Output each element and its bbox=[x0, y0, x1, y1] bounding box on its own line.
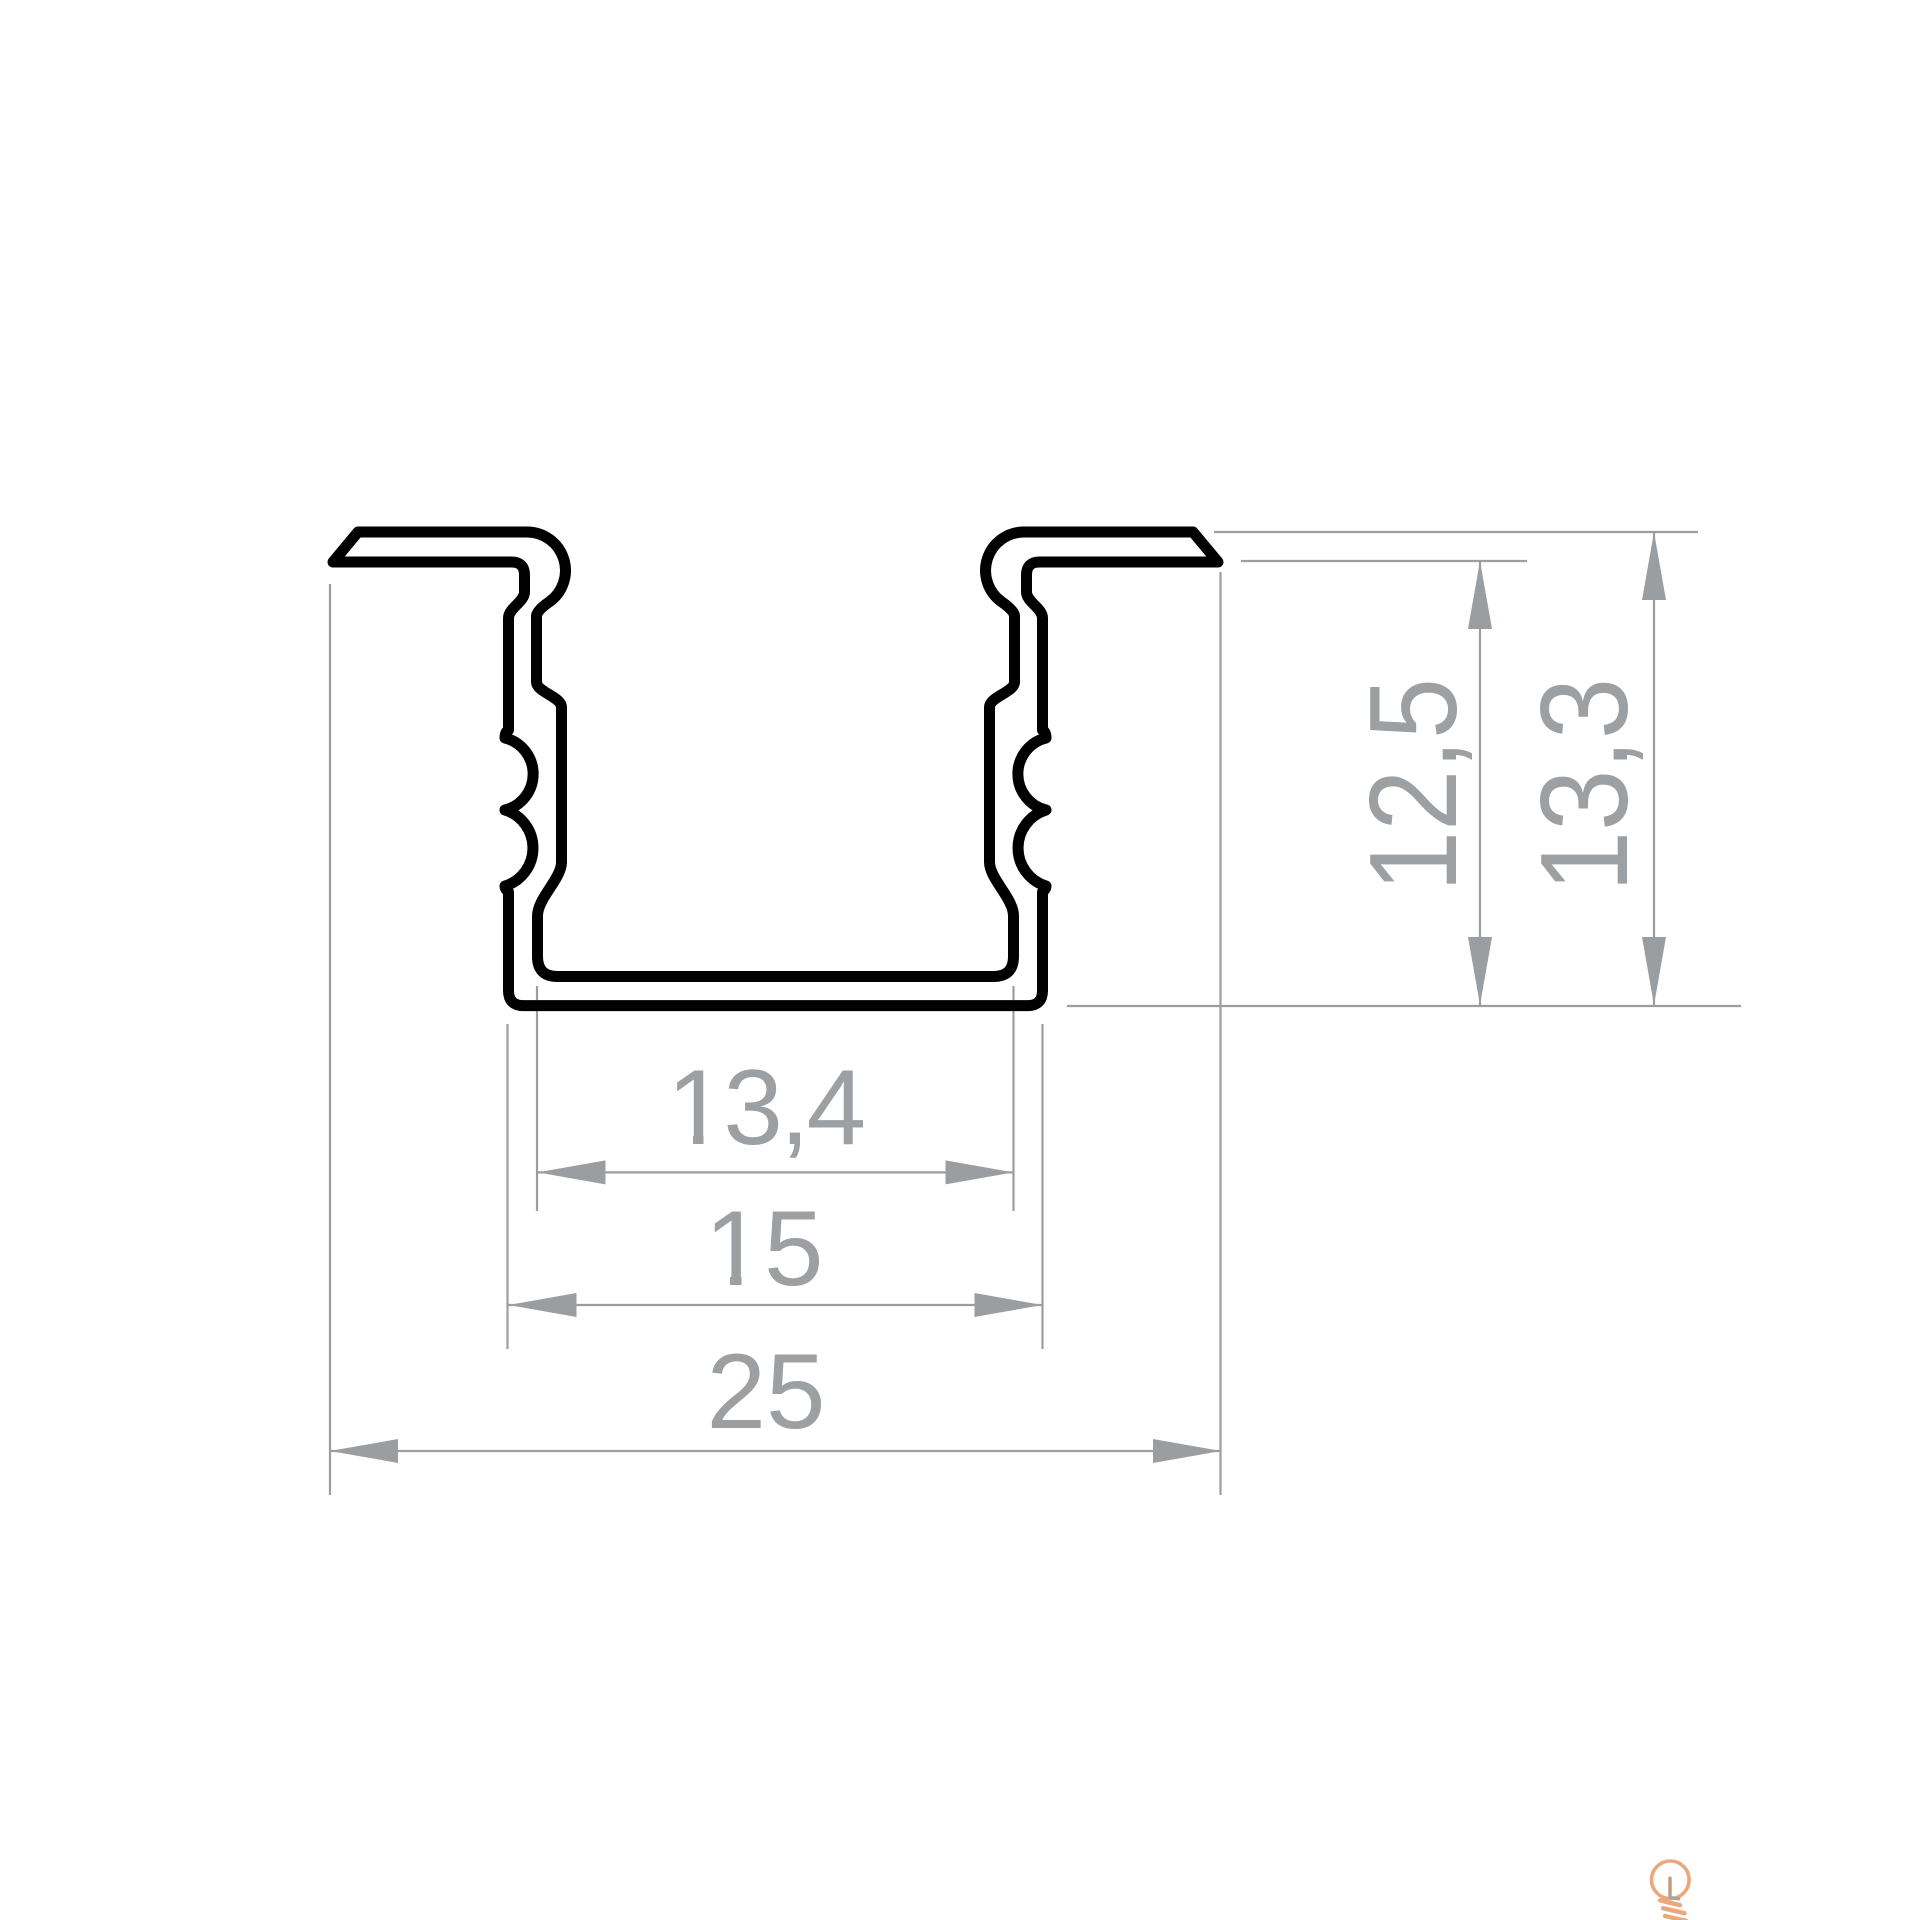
svg-text:13,3: 13,3 bbox=[1515, 678, 1654, 892]
svg-text:12,5: 12,5 bbox=[1344, 678, 1483, 892]
svg-text:25: 25 bbox=[706, 1331, 825, 1451]
svg-text:15: 15 bbox=[704, 1188, 823, 1308]
svg-text:13,4: 13,4 bbox=[667, 1047, 864, 1167]
